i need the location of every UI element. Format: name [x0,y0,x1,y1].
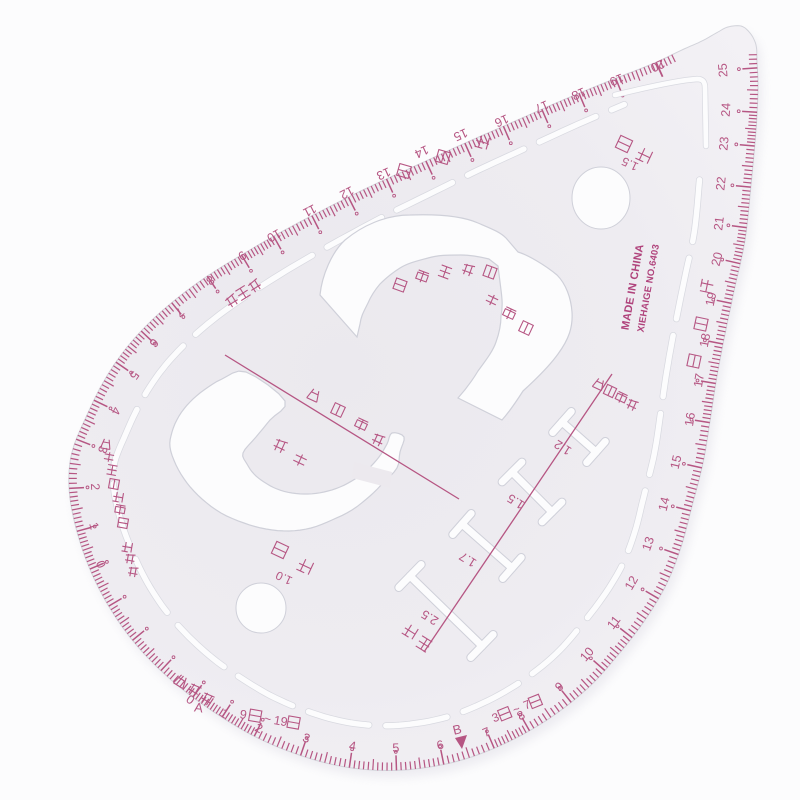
svg-text:23: 23 [716,136,731,151]
svg-text:5: 5 [392,741,399,755]
svg-text:24: 24 [719,102,734,117]
svg-text:2: 2 [88,483,102,491]
svg-text:21: 21 [711,216,727,232]
svg-text:22: 22 [713,176,728,191]
svg-text:18: 18 [697,332,713,348]
svg-text:16: 16 [682,411,698,427]
svg-text:17: 17 [691,372,707,388]
svg-text:19: 19 [273,713,289,729]
svg-text:25: 25 [716,63,731,78]
